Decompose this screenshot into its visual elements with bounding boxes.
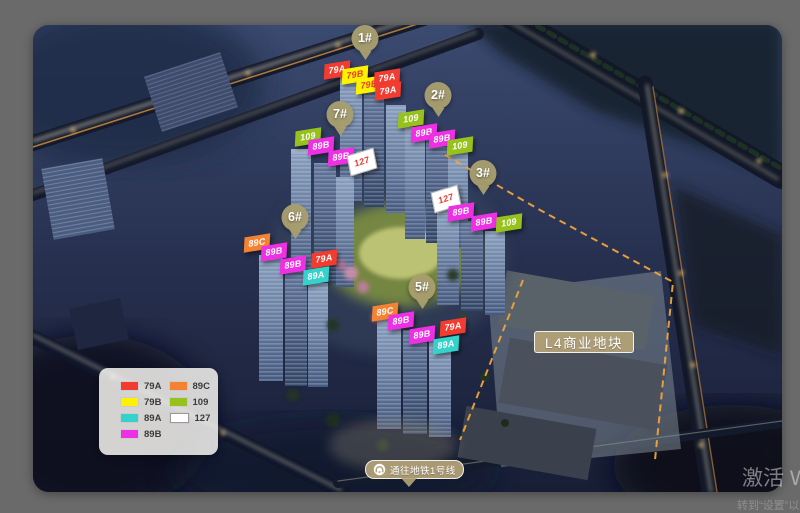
activate-windows-watermark-subline: 转到“设置”以激活 — [737, 497, 800, 513]
aerial-rendering-photo — [33, 25, 782, 492]
night-aerial-scene — [33, 25, 782, 492]
screenshot-root: { "window": { "background_color": "#6a6a… — [0, 0, 800, 503]
